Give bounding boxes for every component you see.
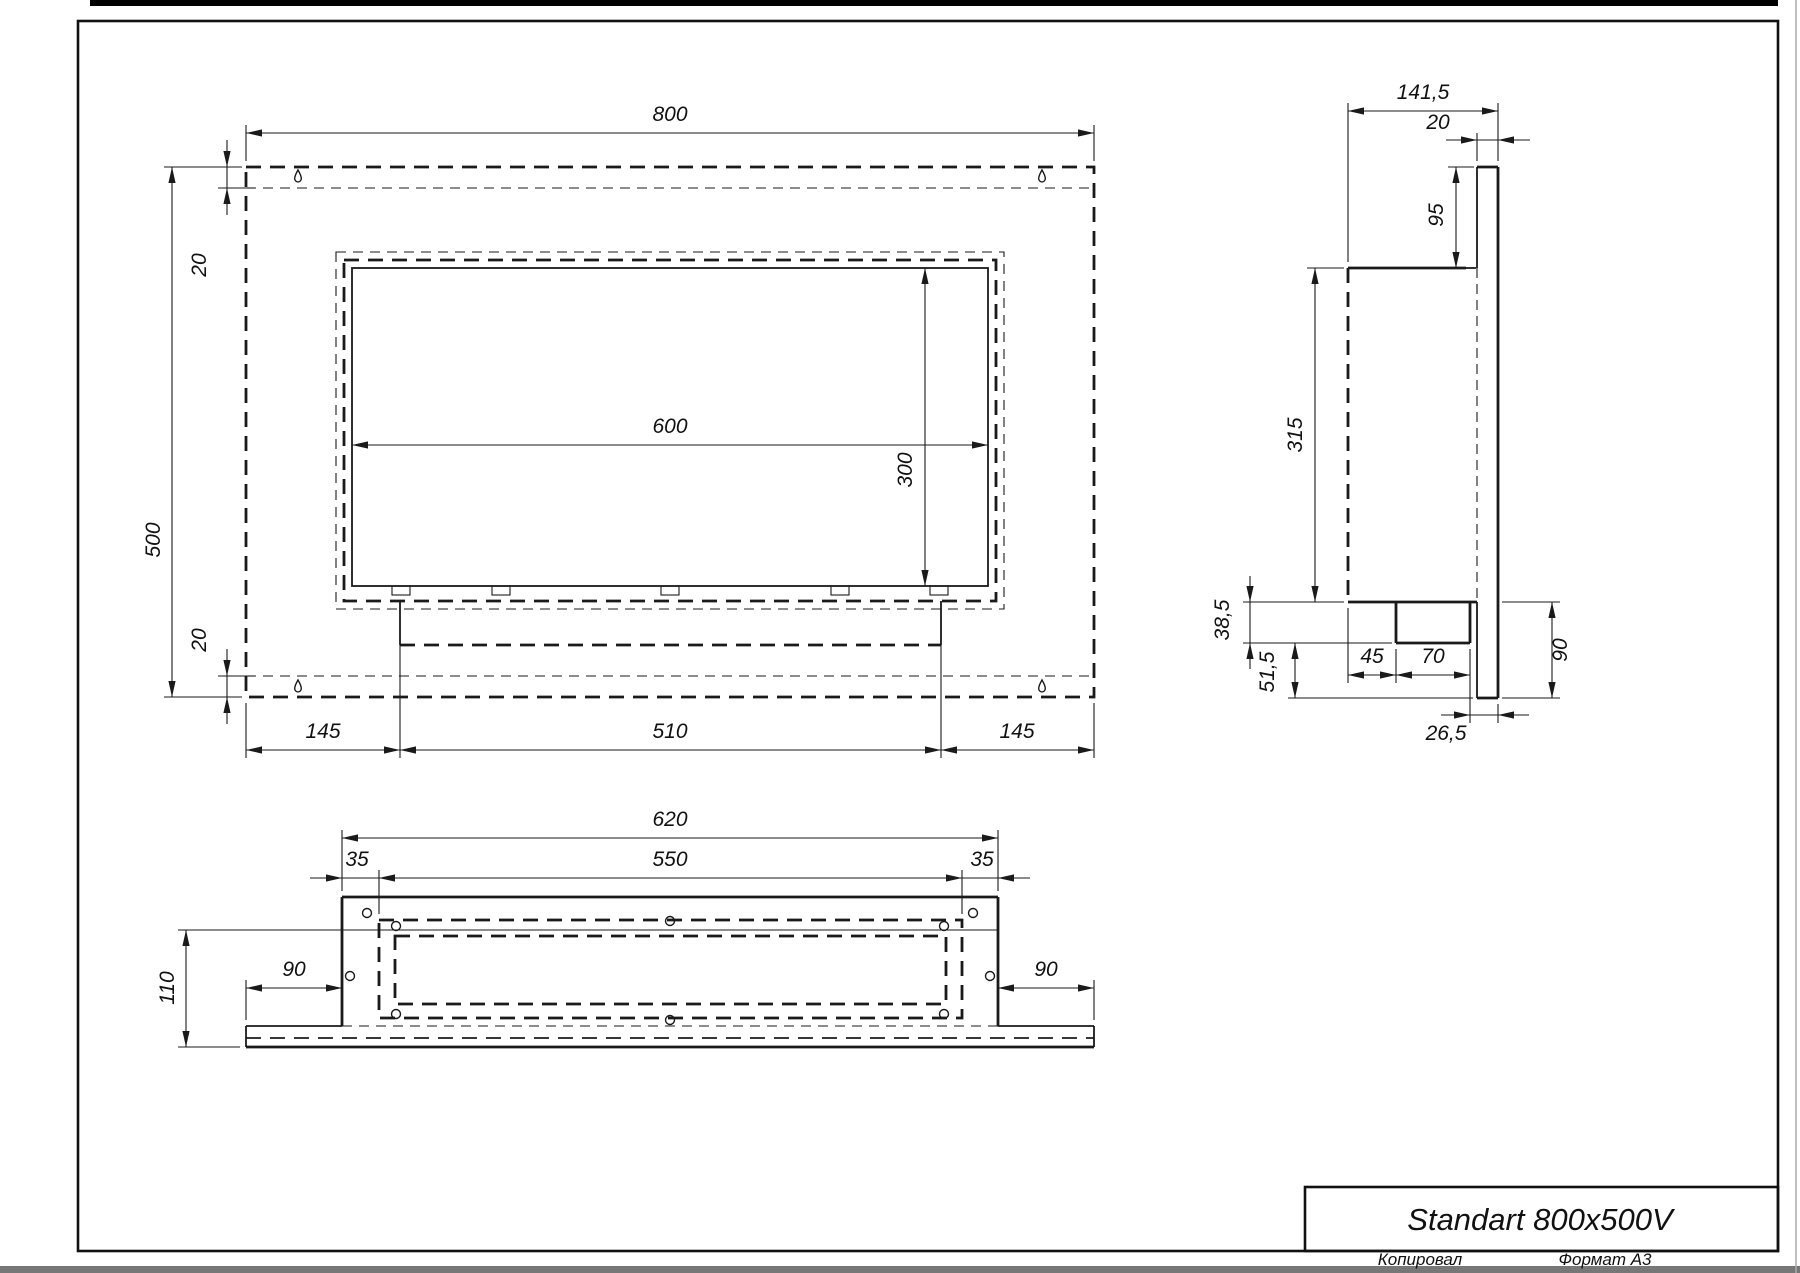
plan-screw-holes	[346, 909, 995, 1025]
keyhole-icon	[295, 680, 302, 692]
dim-label: 145	[305, 720, 340, 743]
opening-tabs	[392, 586, 948, 595]
dim-label: 90	[282, 958, 306, 981]
dim-front-width: 800	[246, 103, 1094, 161]
page-top-edge	[90, 0, 1778, 6]
plan-wall-plate	[246, 1026, 1094, 1047]
side-body	[1348, 268, 1477, 602]
plan-opening-inner	[395, 936, 946, 1004]
screw-hole	[940, 922, 949, 931]
dim-label: 38,5	[1211, 599, 1234, 640]
drawing-canvas: 800 500 20 20 600	[0, 0, 1800, 1273]
dim-label: 26,5	[1425, 722, 1467, 745]
dim-label: 20	[188, 628, 211, 653]
dim-label: 800	[652, 103, 687, 126]
side-wall-plate	[1477, 167, 1498, 698]
dim-label: 145	[999, 720, 1034, 743]
dim-label: 500	[142, 522, 165, 557]
dim-label: 90	[1549, 638, 1572, 662]
keyhole-icon	[295, 170, 302, 182]
dim-label: 90	[1034, 958, 1058, 981]
dim-side-back-offset: 26,5	[1425, 704, 1529, 745]
dim-plan-plate-margins: 90 90	[246, 958, 1094, 1020]
dim-side-body-height: 315	[1243, 268, 1344, 602]
screw-hole	[392, 1010, 401, 1019]
plan-view: 620 35 550 35 110 90	[156, 808, 1094, 1047]
drawing-title: Standart 800x500V	[1407, 1202, 1676, 1237]
dim-side-plate-thickness: 20	[1425, 111, 1530, 161]
screw-hole	[363, 909, 372, 918]
dim-label: 600	[652, 415, 687, 438]
dim-label: 110	[156, 971, 179, 1005]
page-bottom-edge	[0, 1266, 1800, 1273]
dim-front-height: 500	[142, 167, 242, 697]
title-block: Standart 800x500V Копировал Формат А3	[1305, 1187, 1778, 1269]
dim-front-bottom-margin: 20	[188, 628, 246, 724]
screw-hole	[346, 972, 355, 981]
dim-label: 35	[345, 848, 369, 871]
dim-label: 510	[652, 720, 687, 743]
dim-label: 70	[1421, 645, 1445, 668]
dim-side-burner-chain: 45 70	[1348, 608, 1470, 723]
dim-opening-width: 600	[352, 415, 988, 445]
dim-side-depth: 141,5	[1348, 81, 1498, 262]
dim-side-lower-total: 90	[1502, 602, 1572, 698]
sheet-border	[78, 21, 1778, 1251]
dim-label: 35	[970, 848, 994, 871]
keyhole-icon	[1039, 170, 1046, 182]
dim-front-bottom-chain: 145 510 145	[246, 645, 1094, 758]
dim-plan-opening-chain: 35 550 35	[310, 848, 1030, 914]
dim-label: 95	[1425, 203, 1448, 227]
format-label: Формат А3	[1558, 1250, 1652, 1269]
dim-opening-height: 300	[894, 268, 925, 586]
screw-hole	[392, 922, 401, 931]
screw-hole	[969, 909, 978, 918]
dim-label: 20	[1425, 111, 1450, 134]
screw-hole	[986, 972, 995, 981]
drawing-sheet: 800 500 20 20 600	[0, 0, 1800, 1273]
dim-label: 20	[188, 253, 211, 278]
dim-front-top-margin: 20	[188, 140, 246, 278]
dim-label: 141,5	[1397, 81, 1450, 104]
dim-label: 550	[652, 848, 687, 871]
dim-label: 620	[652, 808, 687, 831]
dim-label: 45	[1360, 645, 1384, 668]
dim-label: 51,5	[1256, 651, 1279, 692]
dim-label: 300	[894, 452, 917, 487]
front-view: 800 500 20 20 600	[142, 103, 1094, 758]
keyhole-icon	[1039, 680, 1046, 692]
dim-side-top-offset: 95	[1425, 167, 1474, 268]
side-view: 141,5 20 95 315 38,5	[1211, 81, 1572, 745]
fuel-tray	[400, 601, 941, 645]
page-frame	[0, 0, 1800, 1273]
copied-label: Копировал	[1378, 1250, 1463, 1269]
side-burner	[1396, 602, 1470, 643]
dim-label: 315	[1284, 417, 1307, 452]
